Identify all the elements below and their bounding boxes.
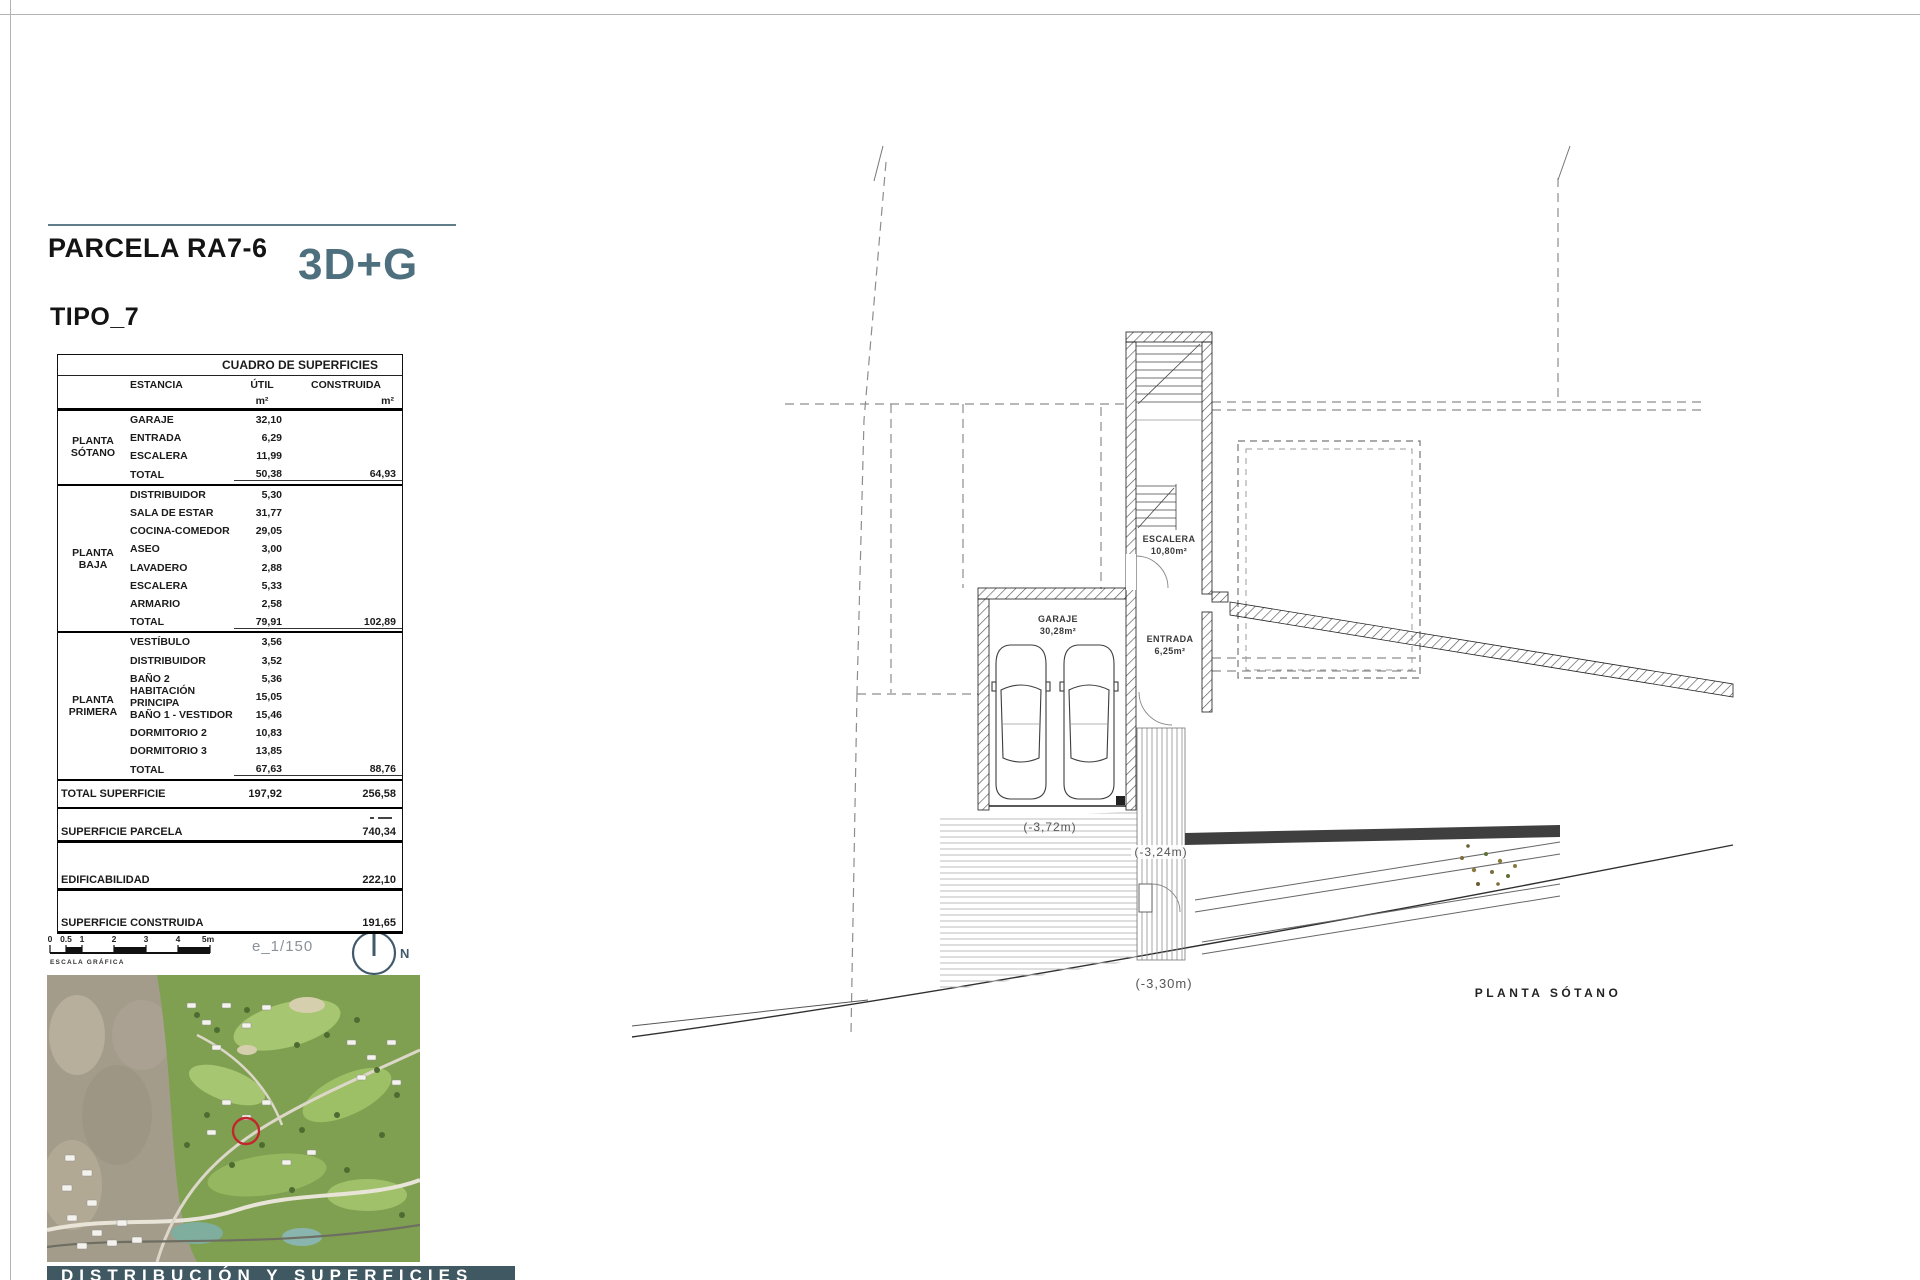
col-util: ÚTIL [234, 379, 290, 391]
scale-caption: ESCALA GRÁFICA [50, 957, 125, 966]
site-map-image [42, 975, 420, 1262]
tipo-label: TIPO_7 [50, 303, 139, 332]
surface-table: CUADRO DE SUPERFICIES ESTANCIA ÚTIL CONS… [57, 354, 403, 934]
table-row: DORMITORIO 210,83 [128, 724, 402, 742]
grand-total-row: TOTAL SUPERFICIE 197,92 256,58 [58, 781, 402, 809]
garage-label: GARAJE [1038, 614, 1078, 624]
scale-tick-5: 5m [202, 934, 215, 944]
car-top-view [992, 645, 1118, 799]
unit-util: m² [234, 395, 290, 407]
table-unit-row: m² m² [58, 393, 402, 411]
floor-label: PLANTA SÓTANO [58, 411, 128, 484]
scale-tick-05: 0.5 [60, 934, 72, 944]
long-retaining-wall [1230, 602, 1733, 697]
table-row-total: TOTAL79,91102,89 [128, 613, 402, 631]
level-label-2: (-3,24m) [1134, 845, 1187, 859]
scale-tick-2: 2 [112, 934, 117, 944]
type-badge: 3D+G [298, 240, 418, 290]
footer-title: DISTRIBUCIÓN Y SUPERFICIES [47, 1266, 515, 1280]
header-rule [48, 224, 456, 226]
table-row-total: TOTAL67,6388,76 [128, 761, 402, 779]
stair-treads-lower [1136, 484, 1176, 530]
overline-mark [378, 817, 392, 819]
terrace-area [940, 812, 1137, 992]
table-row: HABITACIÓN PRINCIPA15,05 [128, 688, 402, 706]
table-row-total: TOTAL50,3864,93 [128, 466, 402, 484]
page-title: PARCELA RA7-6 [48, 233, 268, 264]
sheet-border-left [10, 0, 11, 1280]
table-row: DISTRIBUIDOR3,52 [128, 651, 402, 669]
floor-label: PLANTA BAJA [58, 486, 128, 632]
entry-area-label: 6,25m² [1155, 646, 1186, 656]
scale-tick-3: 3 [144, 934, 149, 944]
boundary-corner-marks [874, 146, 1570, 181]
table-row: ESCALERA5,33 [128, 577, 402, 595]
unit-construida: m² [290, 395, 402, 407]
footer-title-bar: DISTRIBUCIÓN Y SUPERFICIES [47, 1266, 515, 1280]
level-label-3: (-3,30m) [1135, 976, 1192, 991]
plan-title: PLANTA SÓTANO [1475, 985, 1622, 1000]
table-row: SALA DE ESTAR31,77 [128, 504, 402, 522]
drawing-sheet: GARAJE 30,28m² ESCALERA 10,80m² ENTRADA … [0, 0, 1920, 1280]
table-row: ENTRADA6,29 [128, 429, 402, 447]
table-column-headers: ESTANCIA ÚTIL CONSTRUIDA [58, 376, 402, 393]
entry-label: ENTRADA [1147, 634, 1194, 644]
summary-row-parcela: SUPERFICIE PARCELA 740,34 [58, 809, 402, 843]
north-label: N [400, 946, 409, 961]
table-section-primera: PLANTA PRIMERA VESTÍBULO3,56 DISTRIBUIDO… [58, 633, 402, 781]
table-row: ARMARIO2,58 [128, 595, 402, 613]
scale-ratio: e_1/150 [252, 938, 313, 955]
ramp-lines [1195, 842, 1560, 954]
table-row: DORMITORIO 313,85 [128, 742, 402, 760]
table-row: DISTRIBUIDOR5,30 [128, 486, 402, 504]
table-row: LAVADERO2,88 [128, 559, 402, 577]
scale-tick-1: 1 [80, 934, 85, 944]
summary-row-edificabilidad: EDIFICABILIDAD 222,10 [58, 843, 402, 891]
table-row: COCINA-COMEDOR29,05 [128, 522, 402, 540]
table-row: BAÑO 1 - VESTIDOR15,46 [128, 706, 402, 724]
north-compass-icon: N [353, 931, 409, 974]
table-row: ESCALERA11,99 [128, 447, 402, 465]
level-label-1: (-3,72m) [1023, 820, 1076, 834]
scale-tick-4: 4 [176, 934, 181, 944]
stairs-label: ESCALERA [1143, 534, 1196, 544]
garage-area-label: 30,28m² [1040, 626, 1076, 636]
exterior-steps [1137, 728, 1185, 960]
stair-treads-upper [1136, 344, 1202, 420]
table-title: CUADRO DE SUPERFICIES [58, 355, 402, 376]
col-estancia: ESTANCIA [128, 379, 234, 391]
floor-label: PLANTA PRIMERA [58, 633, 128, 779]
table-section-baja: PLANTA BAJA DISTRIBUIDOR5,30 SALA DE EST… [58, 486, 402, 634]
scale-bar: 0 0.5 1 2 3 4 5m ESCALA GRÁFICA [48, 934, 215, 966]
upper-floor-dashed-outline [1238, 441, 1420, 678]
parcel-boundary-lines [785, 162, 1705, 1033]
table-row: ASEO3,00 [128, 540, 402, 558]
wall-pier [1116, 796, 1125, 805]
table-row: GARAJE32,10 [128, 411, 402, 429]
lower-retaining-wall [1185, 825, 1560, 845]
stairs-area-label: 10,80m² [1151, 546, 1187, 556]
sheet-border-top [0, 14, 1920, 15]
table-row: VESTÍBULO3,56 [128, 633, 402, 651]
table-section-sotano: PLANTA SÓTANO GARAJE32,10 ENTRADA6,29 ES… [58, 411, 402, 486]
scale-tick-0: 0 [48, 934, 53, 944]
summary-row-construida: SUPERFICIE CONSTRUIDA 191,65 [58, 891, 402, 934]
col-construida: CONSTRUIDA [290, 379, 402, 391]
